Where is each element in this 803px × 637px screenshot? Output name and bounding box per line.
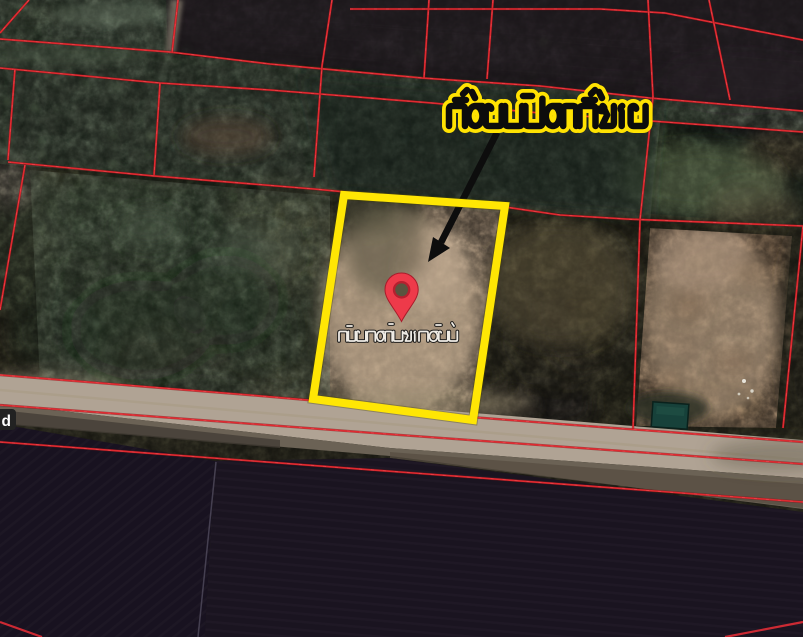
svg-text:d: d <box>2 413 11 430</box>
